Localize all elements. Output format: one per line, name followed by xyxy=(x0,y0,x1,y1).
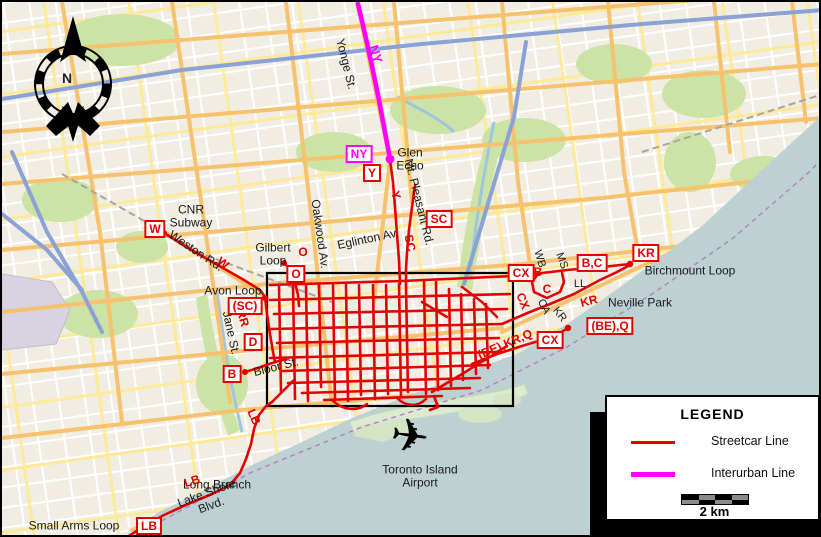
label-gilbert-loop: Gilbert Loop xyxy=(248,241,298,266)
map-canvas: N ✈ Glen Echo CNR Subway Gilbert Loop Av… xyxy=(0,0,821,537)
scale-label: 2 km xyxy=(607,504,821,519)
compass-north-label: N xyxy=(62,70,72,86)
marker-sc-paren: (SC) xyxy=(228,297,263,315)
label-small-arms-loop: Small Arms Loop xyxy=(29,520,120,533)
marker-kr: KR xyxy=(632,244,659,262)
marker-cx-south: CX xyxy=(537,331,564,349)
marker-sc: SC xyxy=(426,210,453,228)
label-avon-loop: Avon Loop xyxy=(204,285,261,298)
route-c-inline: C xyxy=(543,283,552,295)
marker-y: Y xyxy=(363,164,381,182)
compass-rose: N xyxy=(26,14,122,149)
interurban-line-swatch xyxy=(631,472,675,477)
marker-b: B xyxy=(223,365,242,383)
label-island-airport: Toronto Island Airport xyxy=(364,463,476,488)
legend-box: LEGEND Streetcar Line Interurban Line 2 … xyxy=(605,395,820,521)
route-o-inline: O xyxy=(298,246,307,258)
legend-title: LEGEND xyxy=(607,406,818,422)
marker-lb: LB xyxy=(136,517,162,535)
streetcar-line-swatch xyxy=(631,441,675,444)
marker-d: D xyxy=(244,333,263,351)
marker-cx-north: CX xyxy=(508,264,535,282)
marker-bc: B,C xyxy=(577,254,608,272)
legend-row-streetcar: Streetcar Line xyxy=(607,430,818,454)
route-sc-inline: SC xyxy=(402,234,417,253)
interurban-line-label: Interurban Line xyxy=(711,466,795,480)
marker-w: W xyxy=(144,220,165,238)
compass-icon xyxy=(26,14,122,144)
streetcar-line-label: Streetcar Line xyxy=(711,434,789,448)
label-neville-park: Neville Park xyxy=(608,297,672,310)
marker-o: O xyxy=(286,265,305,283)
label-cnr-subway: CNR Subway xyxy=(162,203,220,228)
label-ll: LL xyxy=(574,279,586,291)
legend-row-interurban: Interurban Line xyxy=(607,462,818,486)
route-b-inline: B xyxy=(534,266,543,278)
marker-beq: (BE),Q xyxy=(586,317,633,335)
label-birchmount-loop: Birchmount Loop xyxy=(645,265,736,278)
marker-ny: NY xyxy=(346,145,373,163)
airplane-icon: ✈ xyxy=(387,407,433,466)
